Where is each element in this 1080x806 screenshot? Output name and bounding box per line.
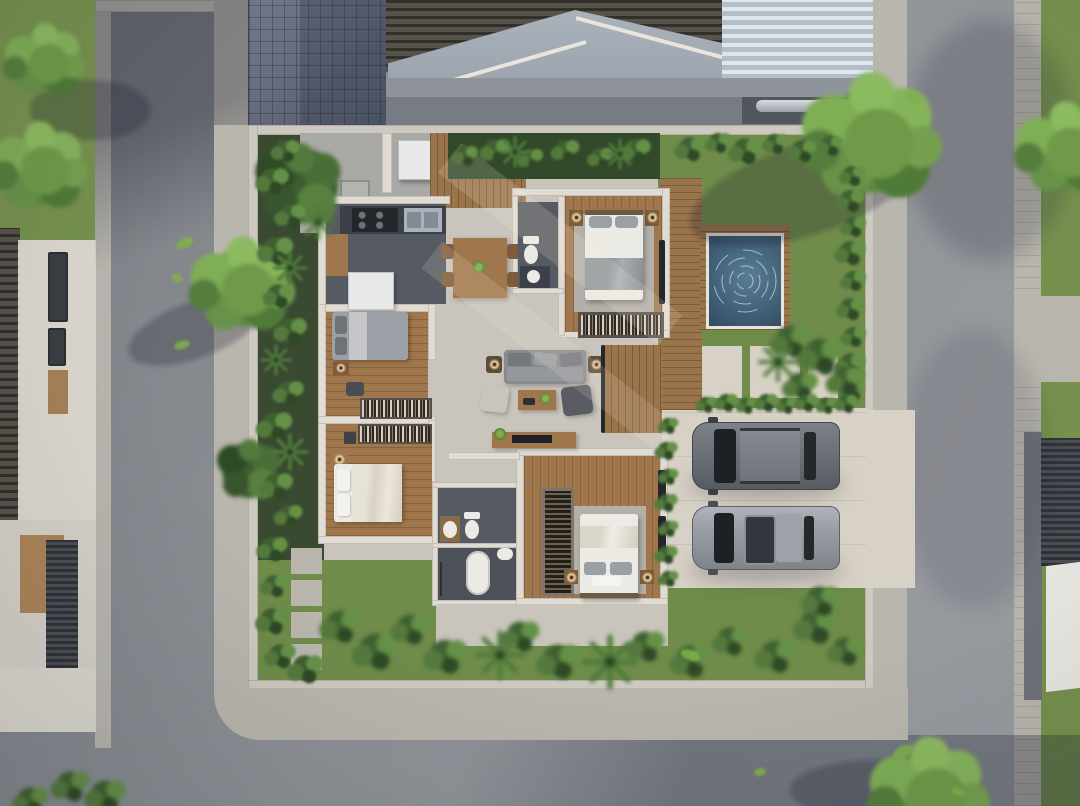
car-light-suv — [692, 506, 840, 570]
bed4-headboard — [580, 593, 638, 598]
kitchen-cabinet-wood — [326, 234, 348, 276]
master-pillow-2 — [615, 216, 638, 228]
bath-toilet-tank — [464, 512, 480, 519]
car1-roof — [740, 428, 800, 484]
wall-bed2-right — [428, 304, 436, 360]
shadow-right-road-1 — [905, 20, 1075, 260]
sidewalk-plot-left — [214, 125, 248, 690]
car2-windshield — [714, 513, 734, 563]
cooktop — [352, 208, 398, 232]
left-house-window-2 — [48, 328, 66, 366]
wall-kitchen-top — [318, 196, 450, 204]
garden-below-driveway — [662, 588, 865, 682]
wall-bed4-top — [516, 448, 668, 456]
wall-living-south — [448, 452, 520, 460]
car2-mirror-bottom — [708, 569, 718, 575]
garage-car-glimpse — [756, 100, 850, 112]
bed2-bed — [332, 312, 408, 360]
sidewalk-plot-bottom — [214, 688, 908, 740]
car1-roofrail-bottom — [740, 481, 800, 484]
bed4-pillow-1 — [584, 562, 606, 575]
left-house-pergola — [46, 540, 78, 668]
stepping-stone-1 — [291, 548, 322, 574]
washing-machine — [398, 140, 434, 180]
car2-rear-window — [804, 516, 814, 560]
bed4-pillow-white — [592, 576, 622, 586]
bed3-duvet — [352, 464, 402, 522]
wall-kitchen-left — [318, 196, 326, 312]
utility-wall-stub — [382, 133, 392, 193]
coffee-table-tray — [523, 398, 535, 405]
grass-top-left — [0, 0, 96, 246]
bed2-bookshelf — [360, 398, 432, 419]
sofa-cushion-1 — [508, 353, 531, 366]
car-dark-suv — [692, 422, 840, 490]
bed3-bed — [334, 464, 402, 522]
coffee-table — [518, 390, 556, 410]
brick-driveway-shade — [300, 0, 386, 126]
sidewalk-plot-right-lower — [873, 578, 907, 690]
left-house-door-wood — [48, 370, 68, 414]
console-plant — [494, 428, 506, 440]
master-window-frame — [659, 240, 665, 304]
bath-second-basin — [497, 548, 513, 560]
double-sink — [404, 208, 442, 232]
car1-rear-window — [804, 432, 816, 480]
bed2-pillow-2 — [335, 337, 347, 355]
wall-ensuite-bottom — [512, 288, 564, 294]
car1-mirror-top — [708, 417, 718, 423]
car2-roof-rear — [776, 514, 802, 562]
corrugated-roof — [722, 0, 880, 88]
bed3-pillow-1 — [337, 469, 350, 491]
car1-windshield — [714, 429, 736, 483]
bed3-wardrobe — [358, 424, 432, 444]
left-house-window-1 — [48, 252, 68, 322]
bed4-window-2 — [658, 516, 666, 552]
wall-bed3-bottom — [318, 536, 440, 544]
master-lamp-left — [571, 212, 582, 223]
tv-panel — [512, 435, 552, 443]
bushes-bottom-left-street — [12, 772, 126, 806]
plunge-pool — [706, 233, 784, 329]
stepping-stone-4 — [291, 644, 322, 670]
master-pillow-1 — [589, 216, 612, 228]
bed2-sheet-fold — [349, 312, 367, 360]
bed3-dark-box — [344, 432, 356, 444]
left-house-wall-bottom — [0, 668, 96, 732]
tv-console — [492, 432, 576, 448]
wall-bed2-left — [318, 304, 326, 544]
bed2-ottoman — [346, 382, 364, 396]
bed4-bed — [580, 514, 638, 598]
stepping-stone-2 — [291, 580, 322, 606]
shadow-bottom-road — [430, 735, 1080, 806]
bed4-window-1 — [658, 470, 666, 506]
shower-glass-line — [440, 562, 442, 596]
right-house-awning — [1046, 562, 1080, 692]
ensuite-round-sink — [527, 270, 540, 283]
bathtub — [466, 551, 490, 595]
pool-ripples — [709, 236, 781, 326]
wall-bed4-left — [516, 448, 524, 606]
sidewalk-plot-right — [873, 0, 907, 417]
shadow-right-road-2 — [900, 330, 1050, 610]
sink-basin-left — [407, 212, 421, 228]
master-headboard — [585, 210, 643, 215]
stepping-stone-3 — [291, 612, 322, 638]
master-lamp-right — [647, 212, 658, 223]
bath-bowl-sink — [443, 521, 457, 538]
armchair-light — [479, 383, 509, 413]
refrigerator — [348, 272, 394, 310]
driveway-apron — [865, 410, 915, 588]
bed4-duvet-fold — [580, 526, 638, 548]
plot-wall-left — [248, 125, 258, 690]
wall-master-top — [512, 188, 670, 196]
coffee-table-plant — [540, 393, 551, 404]
car2-mirror-top — [708, 501, 718, 507]
bath-toilet-bowl — [465, 520, 479, 539]
car1-mirror-bottom — [708, 489, 718, 495]
south-porch — [436, 604, 668, 646]
bed4-pillow-2 — [610, 562, 632, 575]
bed2-pillow-1 — [335, 316, 347, 334]
car2-sunroof — [744, 515, 776, 565]
side-lamp-left — [489, 359, 500, 370]
path-pad-3 — [808, 346, 838, 398]
bed4-lamp-left — [566, 572, 577, 583]
aerial-render-canvas — [0, 0, 1080, 806]
path-pad-2 — [750, 346, 800, 398]
bed2-lamp — [336, 363, 346, 373]
car1-roofrail-top — [740, 428, 800, 431]
bed3-pillow-2 — [337, 494, 350, 516]
bed4-lamp-right — [642, 572, 653, 583]
sink-basin-right — [424, 212, 438, 228]
